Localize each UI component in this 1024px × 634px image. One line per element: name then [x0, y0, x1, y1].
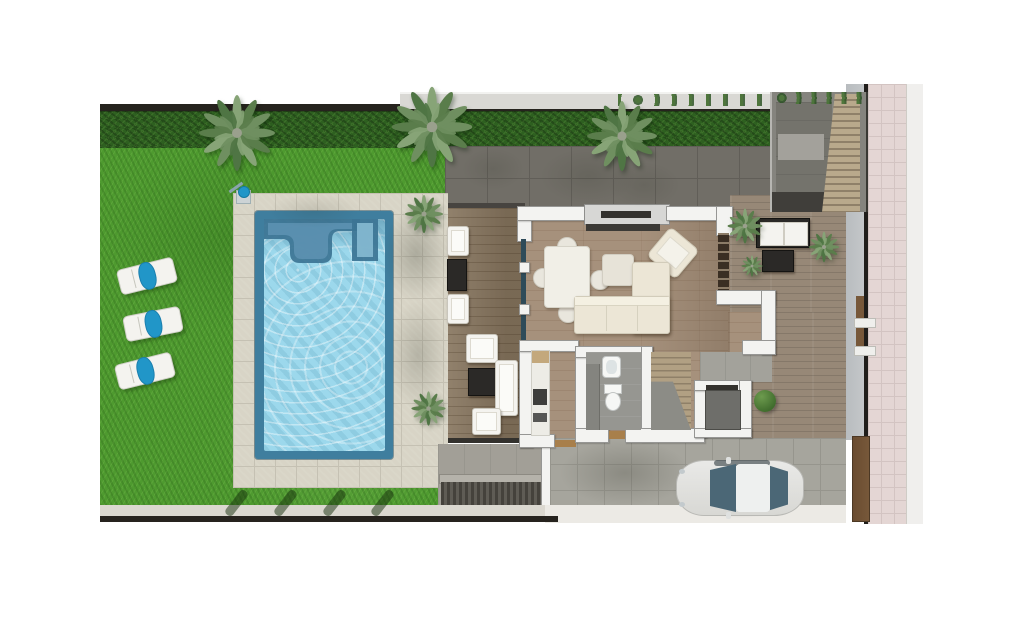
wall-right	[742, 340, 776, 355]
deck-chair	[447, 294, 469, 324]
deck-armchair	[472, 408, 501, 435]
shower-head	[238, 186, 250, 198]
pool-steps	[264, 219, 385, 299]
sidewalk-tiles	[868, 84, 906, 524]
cutting-board	[532, 351, 549, 363]
palm-tree	[399, 189, 449, 239]
garden-bush	[754, 390, 776, 412]
kitchen-appliance	[533, 413, 547, 422]
lounger-towel	[134, 355, 157, 386]
glass-door-post	[519, 262, 530, 273]
entry-step	[854, 346, 876, 356]
sidewalk-curb	[906, 84, 923, 524]
bathroom-vanity	[586, 364, 600, 430]
storage-room-floor	[705, 390, 741, 430]
stairwell-landing	[778, 134, 824, 160]
palm-tree	[187, 83, 287, 183]
sofa	[574, 296, 670, 334]
glass-door-post	[519, 304, 530, 315]
car-mirror	[726, 457, 731, 464]
palm-tree	[804, 227, 844, 267]
window	[584, 204, 670, 225]
kitchen-counter	[531, 350, 550, 436]
wall-bottom	[575, 428, 609, 443]
entry-step	[854, 318, 876, 328]
window-glass	[601, 211, 651, 218]
deck-side-table	[447, 259, 467, 291]
tv-sideboard	[586, 224, 660, 231]
vine-overhang	[770, 92, 868, 104]
site-plan-rendering	[0, 0, 1024, 634]
car-headlight	[679, 469, 685, 474]
sofa-back	[575, 297, 669, 306]
tree-shadow	[268, 194, 360, 228]
perimeter-fence-bottom	[100, 516, 558, 522]
deck-edge	[448, 203, 525, 208]
bathroom-sink	[602, 356, 621, 378]
palm-tree	[722, 203, 768, 249]
palm-tree	[738, 252, 766, 280]
car-roof	[736, 464, 770, 512]
wall-top	[517, 206, 589, 221]
wall-kitchen	[519, 434, 555, 448]
door-mat	[555, 440, 576, 447]
toilet-bowl	[605, 392, 621, 411]
palm-tree	[406, 386, 451, 431]
deck-armchair	[466, 334, 498, 363]
wall-bottom	[625, 428, 705, 443]
coffee-table	[602, 254, 634, 286]
patio-coffee-table	[762, 250, 794, 272]
driveway-shadow	[560, 440, 690, 506]
driveway-gate	[852, 436, 870, 522]
rear-hall-paving	[700, 352, 774, 382]
palm-tree	[379, 74, 485, 180]
car-rear-window	[770, 465, 788, 511]
deck-coffee-table	[468, 368, 496, 396]
car-headlight	[679, 502, 685, 507]
lounger-towel	[142, 309, 164, 340]
door-mat	[609, 431, 625, 439]
exterior-stairwell	[770, 92, 868, 212]
cooktop	[533, 389, 547, 405]
deck-chair	[447, 226, 469, 256]
car-mirror	[726, 512, 731, 519]
palm-tree	[576, 90, 668, 182]
deck-edge	[448, 438, 525, 443]
sink-basin	[606, 360, 617, 374]
outdoor-shower	[226, 180, 256, 206]
parked-car	[676, 460, 804, 516]
lounger-towel	[136, 260, 159, 291]
sliding-glass-door	[521, 239, 526, 341]
car-windshield	[710, 463, 736, 513]
